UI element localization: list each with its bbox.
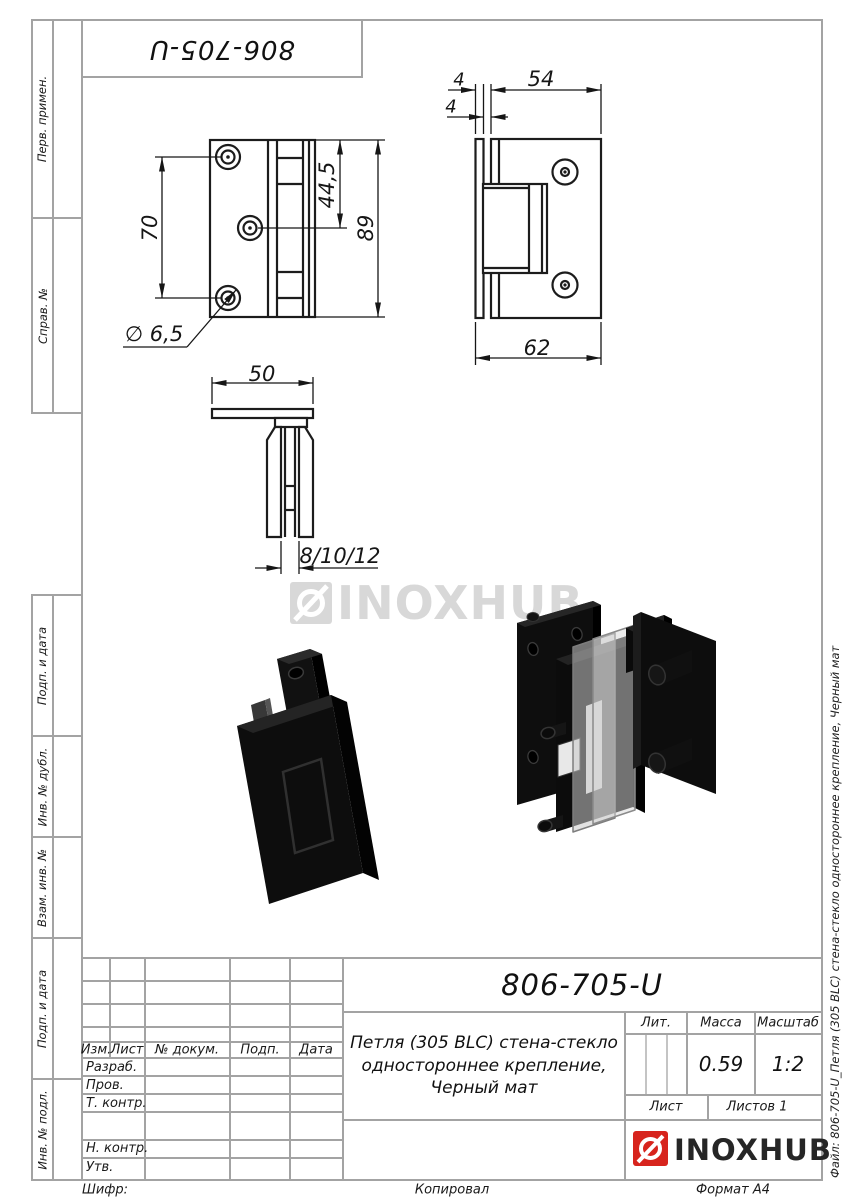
list-label: Лист	[650, 1100, 683, 1115]
masshtab-label: Масштаб	[757, 1016, 819, 1031]
dim-top-plate-width: 50	[249, 362, 276, 386]
massa-value: 0.59	[699, 1052, 744, 1076]
masshtab-value: 1:2	[772, 1052, 804, 1076]
title-block-designation: 806-705-U	[501, 968, 663, 1002]
row-tkontr: Т. контр.	[86, 1096, 146, 1111]
dim-side-gap: 4	[445, 97, 456, 118]
margin-label-sprav-no: Справ. №	[32, 218, 53, 413]
view-front	[123, 140, 385, 347]
col-list: Лист	[111, 1043, 144, 1058]
margin-label-vzam-inv: Взам. инв. №	[32, 837, 53, 938]
col-data: Дата	[299, 1043, 333, 1058]
margin-label-podp-data-bottom: Подп. и дата	[32, 938, 53, 1079]
dim-side-total-width: 62	[524, 336, 551, 360]
massa-label: Масса	[700, 1016, 741, 1031]
side-dimension-lines	[447, 84, 601, 365]
dim-glass-thickness: 8/10/12	[300, 544, 381, 568]
lit-label: Лит.	[641, 1016, 671, 1031]
render-exploded	[517, 601, 716, 833]
render-assembled	[237, 649, 379, 904]
row-nkontr: Н. контр.	[86, 1141, 148, 1156]
part-description: Петля (305 BLC) стена-стекло односторонн…	[343, 1012, 625, 1120]
format-label: Формат А4	[696, 1183, 770, 1198]
view-side	[447, 84, 601, 365]
front-dimension-lines	[123, 140, 385, 347]
copied-label: Копировал	[415, 1183, 489, 1198]
row-prov: Пров.	[86, 1078, 124, 1093]
margin-label-perv-primen: Перв. примен.	[32, 20, 53, 218]
col-izm: Изм.	[81, 1043, 112, 1058]
col-dokum: № докум.	[155, 1043, 219, 1058]
dim-hole-diameter: ∅ 6,5	[125, 322, 183, 346]
cipher-label: Шифр:	[82, 1183, 128, 1198]
dim-side-plate-thickness: 4	[453, 70, 464, 91]
top-designation: 806-705-U	[149, 34, 295, 64]
col-podp: Подп.	[240, 1043, 279, 1058]
margin-label-inv-dubl: Инв. № дубл.	[32, 736, 53, 837]
watermark-text: INOXHUB	[337, 576, 583, 630]
dim-side-body-width: 54	[528, 67, 555, 91]
dim-front-mid-hole: 44,5	[315, 162, 339, 209]
file-annotation: Файл: 806-705-U_Петля (305 BLC) стена-ст…	[828, 533, 842, 1178]
top-designation-box: 806-705-U	[82, 20, 362, 77]
row-razrab: Разраб.	[86, 1060, 137, 1075]
brand-logo-text: INOXHUB	[674, 1133, 832, 1167]
watermark-logo: INOXHUB	[290, 576, 583, 630]
brand-logo: INOXHUB	[633, 1131, 832, 1167]
gost-frame	[32, 20, 822, 1180]
row-utv: Утв.	[86, 1160, 113, 1175]
brand-logo-icon	[633, 1131, 668, 1166]
dim-front-hole-span: 70	[138, 215, 162, 242]
drawing-sheet: INOXHUB	[0, 0, 848, 1200]
margin-label-inv-podl: Инв. № подл.	[32, 1079, 53, 1180]
dim-front-height: 89	[354, 215, 378, 242]
margin-label-podp-data-top: Подп. и дата	[32, 595, 53, 736]
listov-label: Листов 1	[727, 1100, 788, 1115]
